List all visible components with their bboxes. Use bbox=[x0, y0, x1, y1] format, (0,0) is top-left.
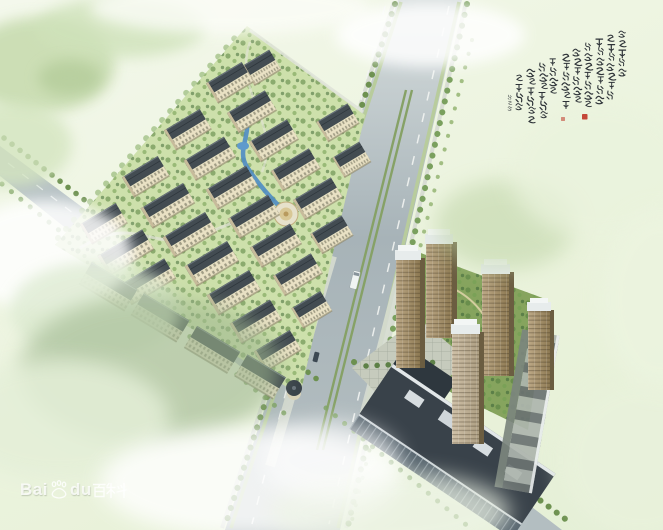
highrise-tower bbox=[481, 259, 514, 376]
highrise-tower bbox=[527, 298, 554, 390]
highrise-tower bbox=[395, 245, 425, 368]
watermark-text-bai: Bai bbox=[20, 480, 48, 500]
baidu-paw-icon bbox=[49, 480, 69, 500]
artist-seal bbox=[582, 114, 588, 120]
artist-seal bbox=[561, 117, 565, 121]
pond bbox=[237, 142, 249, 150]
watermark-text-du: du bbox=[70, 480, 92, 500]
corner-tower bbox=[286, 380, 302, 400]
highrise-tower bbox=[451, 319, 484, 444]
signature-column bbox=[508, 95, 512, 110]
watermark-cjk-baike bbox=[93, 482, 127, 499]
baidu-baike-watermark: Bai du bbox=[20, 480, 127, 500]
calligraphy-inscription bbox=[495, 22, 635, 130]
calligraphy-columns bbox=[516, 31, 626, 123]
aerial-rendering-scene: Bai du bbox=[0, 0, 663, 530]
